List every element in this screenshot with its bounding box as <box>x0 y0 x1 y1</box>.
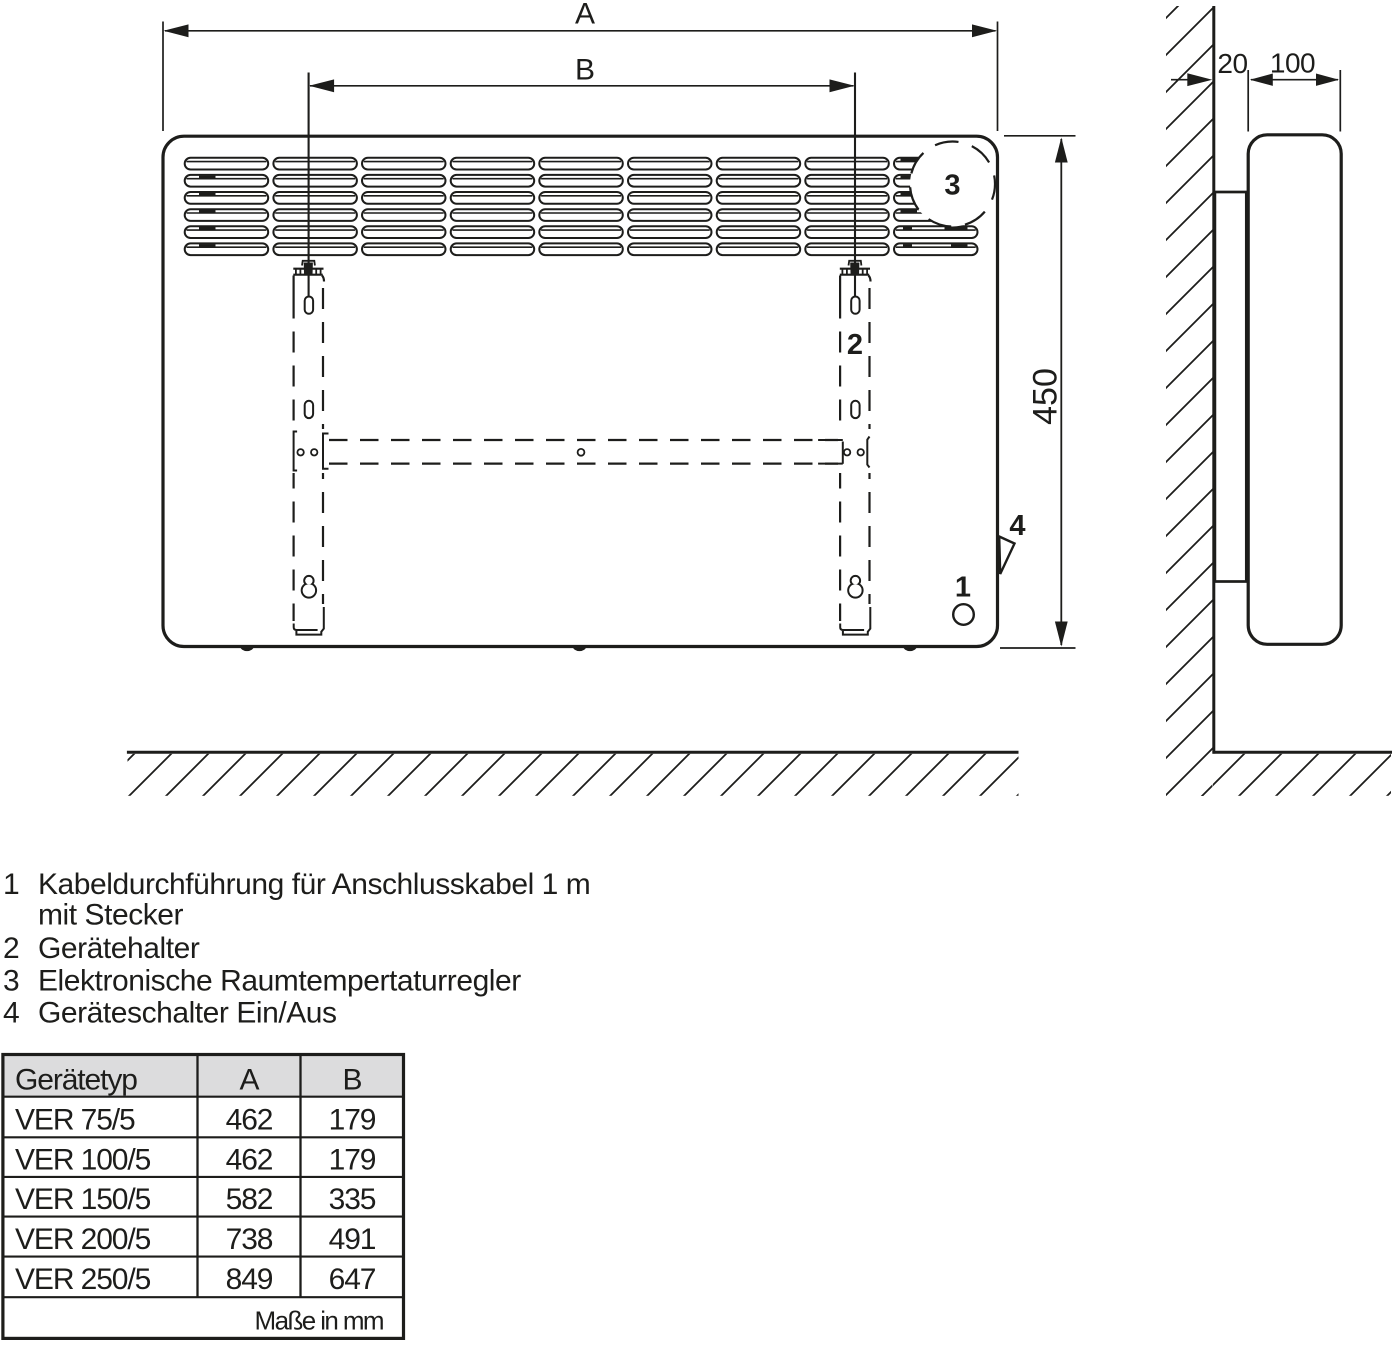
svg-text:4: 4 <box>1009 510 1025 542</box>
svg-text:1: 1 <box>955 572 971 604</box>
svg-text:4: 4 <box>3 997 19 1030</box>
svg-text:Gerätetyp: Gerätetyp <box>15 1064 137 1097</box>
svg-text:1: 1 <box>3 868 19 901</box>
svg-text:VER 250/5: VER 250/5 <box>15 1263 151 1296</box>
svg-text:B: B <box>575 53 595 86</box>
svg-text:mit Stecker: mit Stecker <box>38 899 184 932</box>
svg-text:582: 582 <box>226 1183 273 1216</box>
svg-text:335: 335 <box>329 1183 376 1216</box>
svg-text:462: 462 <box>226 1104 273 1137</box>
svg-text:20: 20 <box>1217 48 1247 79</box>
svg-text:Geräteschalter Ein/Aus: Geräteschalter Ein/Aus <box>38 997 337 1030</box>
svg-text:B: B <box>343 1064 362 1097</box>
svg-text:VER 150/5: VER 150/5 <box>15 1183 151 1216</box>
svg-text:Kabeldurchführung für Anschlus: Kabeldurchführung für Anschlusskabel 1 m <box>38 868 590 901</box>
svg-text:179: 179 <box>329 1104 376 1137</box>
svg-text:VER 200/5: VER 200/5 <box>15 1223 151 1256</box>
svg-text:179: 179 <box>329 1144 376 1177</box>
svg-text:450: 450 <box>1027 368 1065 425</box>
svg-text:VER 75/5: VER 75/5 <box>15 1104 135 1137</box>
svg-text:A: A <box>575 0 595 31</box>
svg-text:2: 2 <box>3 932 19 965</box>
svg-text:VER 100/5: VER 100/5 <box>15 1144 151 1177</box>
svg-text:491: 491 <box>329 1223 376 1256</box>
svg-text:462: 462 <box>226 1144 273 1177</box>
svg-text:Elektronische Raumtempertaturr: Elektronische Raumtempertaturregler <box>38 965 521 998</box>
svg-text:738: 738 <box>226 1223 273 1256</box>
svg-text:647: 647 <box>329 1263 376 1296</box>
svg-text:2: 2 <box>847 329 863 361</box>
svg-text:A: A <box>240 1064 260 1097</box>
svg-text:3: 3 <box>3 965 19 998</box>
svg-text:Maße in mm: Maße in mm <box>255 1306 383 1336</box>
svg-text:Gerätehalter: Gerätehalter <box>38 932 200 965</box>
svg-text:3: 3 <box>944 170 960 202</box>
svg-text:100: 100 <box>1270 48 1315 79</box>
svg-text:849: 849 <box>226 1263 273 1296</box>
